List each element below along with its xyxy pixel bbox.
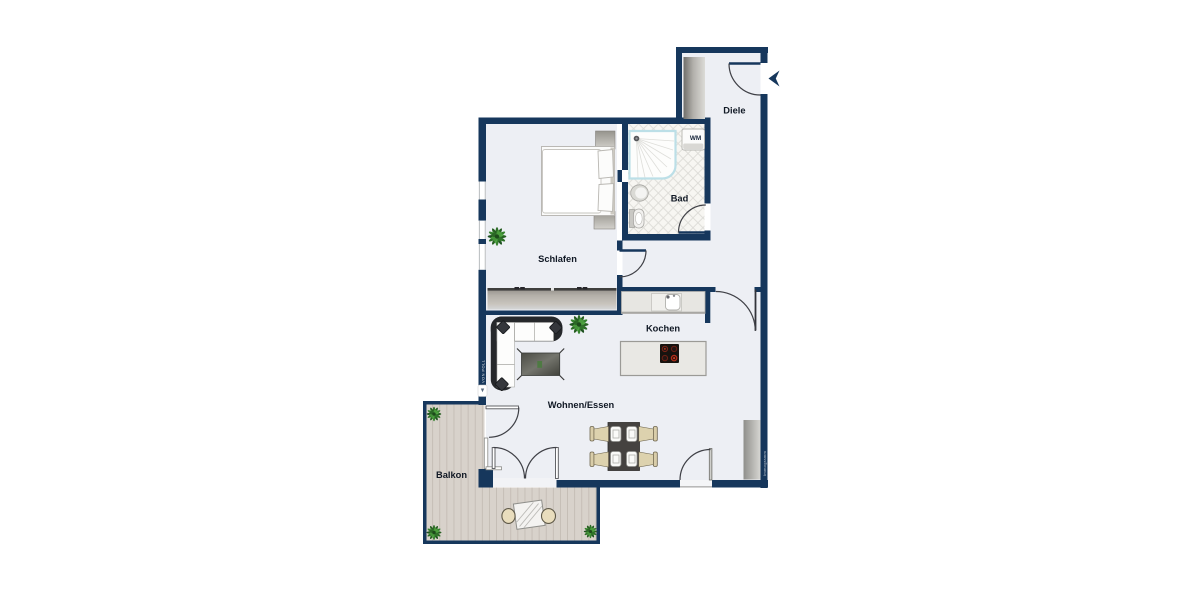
svg-text:VON POLL: VON POLL (481, 359, 486, 383)
svg-text:Bad: Bad (671, 194, 689, 204)
svg-text:Diele: Diele (723, 105, 745, 115)
svg-text:Wohnen/Essen: Wohnen/Essen (548, 400, 615, 410)
svg-text:Schlafen: Schlafen (538, 254, 577, 264)
svg-text:Immogramm: Immogramm (762, 450, 767, 476)
svg-text:WM: WM (690, 135, 701, 142)
svg-text:Kochen: Kochen (646, 323, 680, 333)
svg-text:Balkon: Balkon (436, 470, 467, 480)
